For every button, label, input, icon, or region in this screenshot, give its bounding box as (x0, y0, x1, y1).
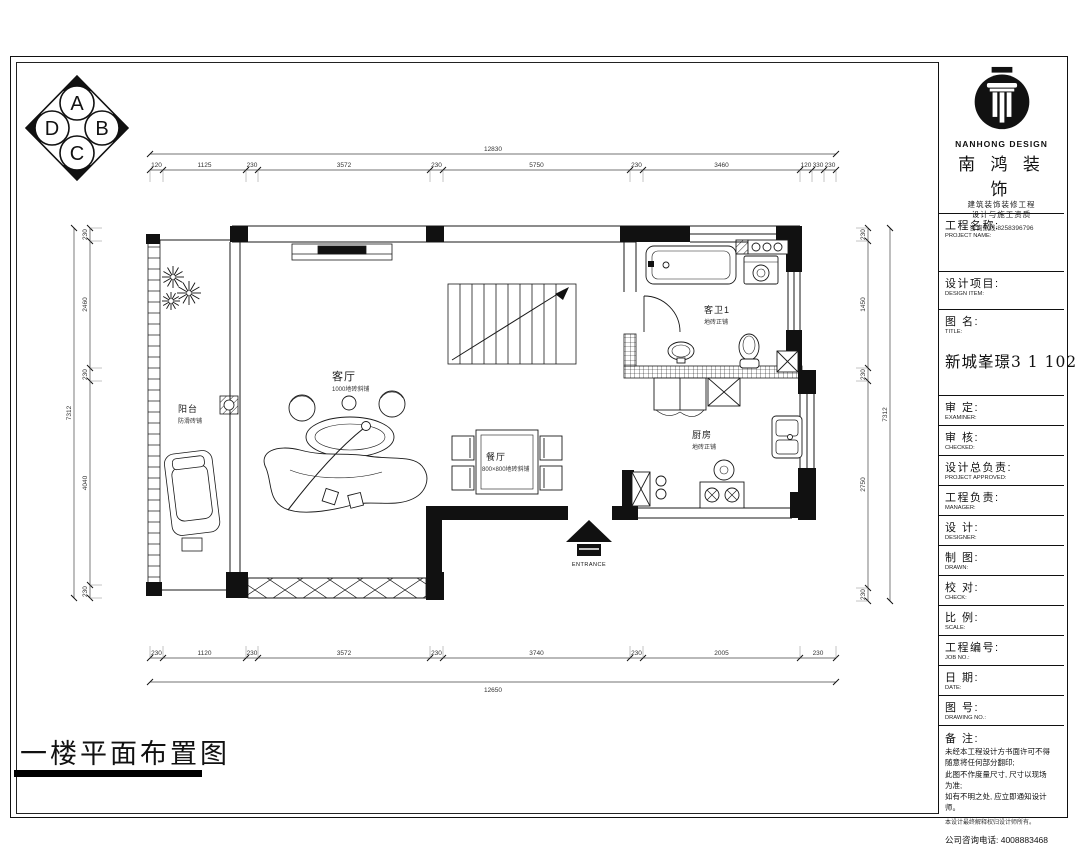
field-scale: 比 例: SCALE: (939, 606, 1064, 636)
field-checked: 审 核: CHECKED: (939, 426, 1064, 456)
field-project-approved: 设计总负责: PROJECT APPROVED: (939, 456, 1064, 486)
field-examiner: 审 定: EXAMINER: (939, 396, 1064, 426)
notes-label: 备 注: (945, 730, 1058, 746)
brand-name-cn: 南 鸿 装 饰 (945, 150, 1058, 200)
notes-disclaimer: 本设计最终解释权归设计师所有。 (945, 817, 1058, 826)
company-logo-block: NANHONG DESIGN 南 鸿 装 饰 建筑装饰装修工程 设计与施工资质 … (939, 62, 1064, 214)
field-manager: 工程负责: MANAGER: (939, 486, 1064, 516)
title-block: NANHONG DESIGN 南 鸿 装 饰 建筑装饰装修工程 设计与施工资质 … (938, 62, 1064, 814)
sheet-title-underline (14, 770, 202, 777)
field-designer: 设 计: DESIGNER: (939, 516, 1064, 546)
field-project-name: 工程名称: PROJECT NAME: (939, 214, 1064, 272)
company-phone: 公司咨询电话: 4008883468 (945, 834, 1058, 846)
field-job-no: 工程编号: JOB NO.: (939, 636, 1064, 666)
company-logo-icon (969, 66, 1035, 132)
field-drawing-title: 图 名: TITLE: 新城峯璟3 1 102 (939, 310, 1064, 396)
field-drawn: 制 图: DRAWN: (939, 546, 1064, 576)
project-title: 新城峯璟3 1 102 (945, 350, 1058, 372)
field-date: 日 期: DATE: (939, 666, 1064, 696)
field-design-item: 设计项目: DESIGN ITEM: (939, 272, 1064, 310)
field-drawing-no: 图 号: DRAWING NO.: (939, 696, 1064, 726)
field-check: 校 对: CHECK: (939, 576, 1064, 606)
notes-block: 备 注: 未经本工程设计方书面许可不得 随意将任何部分翻印; 此图不作度量尺寸,… (939, 726, 1064, 850)
frame-inner (16, 62, 1064, 814)
drawing-sheet: ENTRANCE 客厅 1000地砖斜铺 餐厅 800×800地砖斜铺 厨房 地… (0, 0, 1080, 864)
brand-tagline-1: 建筑装饰装修工程 (945, 200, 1058, 210)
brand-name-en: NANHONG DESIGN (945, 139, 1058, 149)
sheet-title: 一楼平面布置图 (20, 732, 230, 771)
